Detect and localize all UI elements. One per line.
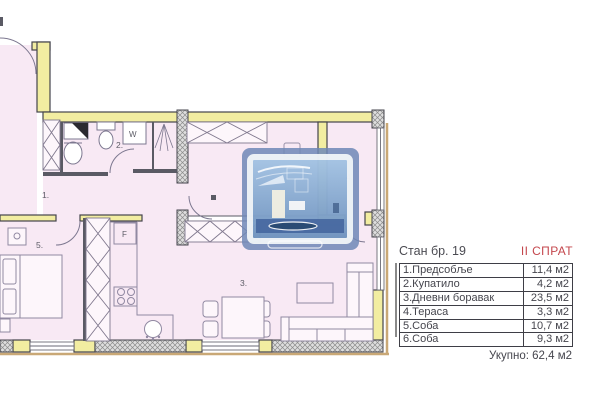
room-name: 1.Предсобље bbox=[400, 264, 523, 277]
room-name: 2.Купатило bbox=[400, 278, 523, 291]
room-name: 3.Дневни боравак bbox=[400, 292, 523, 305]
label-bedroom: 5. bbox=[36, 240, 43, 250]
room-area: 11,4 м2 bbox=[523, 264, 572, 277]
apartment-title: Стан бр. 19 bbox=[399, 244, 466, 258]
fridge-label: F bbox=[122, 230, 127, 239]
room-area: 23,5 м2 bbox=[523, 292, 572, 305]
label-hall: 1. bbox=[42, 190, 49, 200]
table-row: 3.Дневни боравак 23,5 м2 bbox=[400, 292, 572, 306]
floor-label: II СПРАТ bbox=[521, 244, 573, 258]
watermark-logo bbox=[242, 148, 359, 250]
room-name: 4.Тераса bbox=[400, 306, 523, 319]
room-area: 4,2 м2 bbox=[523, 278, 572, 291]
table-row: 2.Купатило 4,2 м2 bbox=[400, 278, 572, 292]
room-area: 3,3 м2 bbox=[523, 306, 572, 319]
table-row: 4.Тераса 3,3 м2 bbox=[400, 306, 572, 320]
floor-plan-page: W F bbox=[0, 0, 600, 400]
room-area: 9,3 м2 bbox=[523, 333, 572, 346]
panel-header: Стан бр. 19 II СПРАТ bbox=[399, 244, 573, 260]
neighbor-wall-line bbox=[395, 263, 397, 337]
room-area: 10,7 м2 bbox=[523, 320, 572, 333]
label-living: 3. bbox=[240, 278, 247, 288]
washer-label: W bbox=[129, 130, 137, 139]
table-row: 5.Соба 10,7 м2 bbox=[400, 320, 572, 334]
room-name: 6.Соба bbox=[400, 333, 523, 346]
apartment-info-panel: Стан бр. 19 II СПРАТ 1.Предсобље 11,4 м2… bbox=[399, 244, 573, 362]
table-row: 1.Предсобље 11,4 м2 bbox=[400, 264, 572, 278]
area-table: 1.Предсобље 11,4 м2 2.Купатило 4,2 м2 3.… bbox=[399, 263, 573, 347]
table-row: 6.Соба 9,3 м2 bbox=[400, 333, 572, 346]
room-name: 5.Соба bbox=[400, 320, 523, 333]
dining-set bbox=[203, 297, 270, 338]
total-area: Укупно: 62,4 м2 bbox=[399, 350, 573, 362]
label-bath: 2. bbox=[116, 140, 123, 150]
